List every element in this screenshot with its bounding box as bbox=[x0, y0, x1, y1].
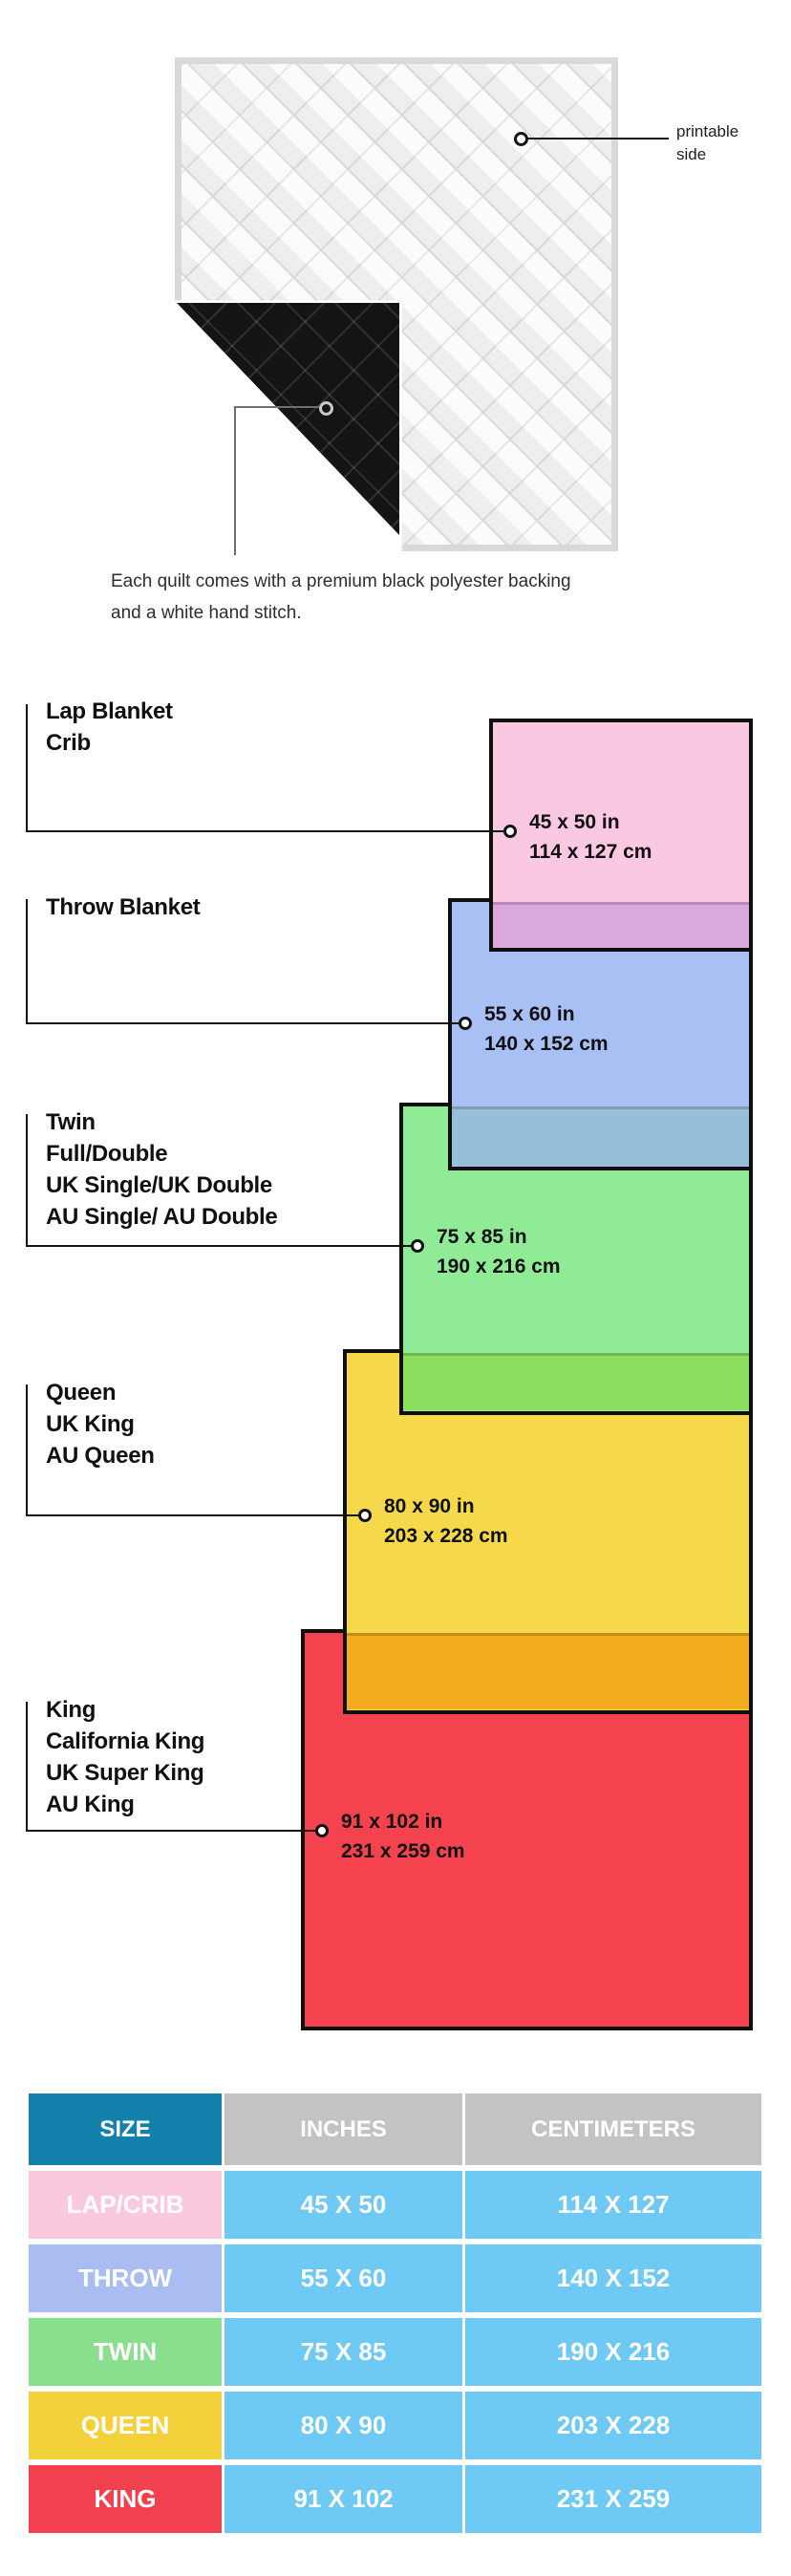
size-label-line: Lap Blanket bbox=[46, 696, 173, 727]
size-dimensions-twin: 75 x 85 in 190 x 216 cm bbox=[437, 1222, 561, 1281]
backing-marker-icon bbox=[319, 401, 333, 416]
size-label-line: AU Single/ AU Double bbox=[46, 1201, 277, 1233]
table-row-inches-king: 91 X 102 bbox=[224, 2465, 462, 2533]
size-label-line: Throw Blanket bbox=[46, 891, 200, 923]
backing-leader-line-vertical bbox=[234, 406, 236, 555]
size-dimensions-lap: 45 x 50 in 114 x 127 cm bbox=[529, 807, 652, 867]
dimension-cm: 203 x 228 cm bbox=[384, 1521, 508, 1551]
size-label-line: UK King bbox=[46, 1408, 155, 1440]
size-label-line: King bbox=[46, 1694, 204, 1726]
leader-line-vertical-throw bbox=[26, 899, 28, 1024]
size-label-line: AU King bbox=[46, 1789, 204, 1820]
table-row-cm-lap: 114 X 127 bbox=[465, 2171, 761, 2239]
table-row-cm-king: 231 X 259 bbox=[465, 2465, 761, 2533]
table-header-size: SIZE bbox=[29, 2093, 222, 2165]
table-row-inches-queen: 80 X 90 bbox=[224, 2392, 462, 2459]
overlap-band-lap-throw bbox=[493, 902, 749, 948]
size-dimensions-queen: 80 x 90 in 203 x 228 cm bbox=[384, 1492, 508, 1551]
dimension-cm: 231 x 259 cm bbox=[341, 1836, 465, 1866]
leader-dot-lap bbox=[503, 825, 517, 838]
overlap-band-throw-twin bbox=[452, 1106, 749, 1166]
size-label-line: UK Single/UK Double bbox=[46, 1170, 277, 1201]
size-label-queen: Queen UK King AU Queen bbox=[46, 1377, 155, 1471]
table-row-size-lap: LAP/CRIB bbox=[29, 2171, 222, 2239]
leader-line-vertical-lap bbox=[26, 704, 28, 832]
leader-dot-king bbox=[315, 1824, 329, 1837]
size-dimensions-king: 91 x 102 in 231 x 259 cm bbox=[341, 1807, 465, 1866]
leader-dot-queen bbox=[358, 1509, 372, 1522]
size-label-line: Queen bbox=[46, 1377, 155, 1408]
overlap-band-twin-queen bbox=[403, 1353, 749, 1410]
leader-line-horizontal-king bbox=[26, 1830, 315, 1832]
table-row-size-king: KING bbox=[29, 2465, 222, 2533]
size-label-line: Crib bbox=[46, 727, 173, 759]
size-label-line: AU Queen bbox=[46, 1440, 155, 1471]
table-row-cm-queen: 203 X 228 bbox=[465, 2392, 761, 2459]
table-row-cm-twin: 190 X 216 bbox=[465, 2318, 761, 2386]
table-row-inches-throw: 55 X 60 bbox=[224, 2244, 462, 2312]
dimension-cm: 190 x 216 cm bbox=[437, 1252, 561, 1281]
size-table: SIZE INCHES CENTIMETERS LAP/CRIB 45 X 50… bbox=[29, 2093, 761, 2533]
printable-side-label: printable side bbox=[676, 120, 762, 166]
leader-dot-throw bbox=[459, 1017, 472, 1030]
size-label-line: UK Super King bbox=[46, 1757, 204, 1789]
backing-leader-line-horizontal bbox=[235, 406, 319, 408]
printable-side-leader-line bbox=[527, 138, 669, 140]
quilt-black-backing-fold bbox=[177, 303, 399, 535]
table-row-inches-lap: 45 X 50 bbox=[224, 2171, 462, 2239]
size-label-line: California King bbox=[46, 1726, 204, 1757]
leader-dot-twin bbox=[411, 1239, 424, 1253]
table-row-size-throw: THROW bbox=[29, 2244, 222, 2312]
dimension-cm: 114 x 127 cm bbox=[529, 837, 652, 867]
size-label-king: King California King UK Super King AU Ki… bbox=[46, 1694, 204, 1820]
table-row-cm-throw: 140 X 152 bbox=[465, 2244, 761, 2312]
dimension-inches: 91 x 102 in bbox=[341, 1807, 465, 1836]
dimension-inches: 55 x 60 in bbox=[484, 999, 609, 1029]
size-label-twin: Twin Full/Double UK Single/UK Double AU … bbox=[46, 1106, 277, 1233]
size-dimensions-throw: 55 x 60 in 140 x 152 cm bbox=[484, 999, 609, 1059]
size-label-throw: Throw Blanket bbox=[46, 891, 200, 923]
dimension-inches: 45 x 50 in bbox=[529, 807, 652, 837]
leader-line-horizontal-throw bbox=[26, 1022, 459, 1024]
table-row-inches-twin: 75 X 85 bbox=[224, 2318, 462, 2386]
size-label-line: Full/Double bbox=[46, 1138, 277, 1170]
size-label-line: Twin bbox=[46, 1106, 277, 1138]
table-header-inches: INCHES bbox=[224, 2093, 462, 2165]
leader-line-horizontal-lap bbox=[26, 830, 503, 832]
table-row-size-twin: TWIN bbox=[29, 2318, 222, 2386]
backing-caption: Each quilt comes with a premium black po… bbox=[111, 566, 593, 629]
leader-line-vertical-twin bbox=[26, 1114, 28, 1247]
dimension-inches: 75 x 85 in bbox=[437, 1222, 561, 1252]
printable-side-marker-icon bbox=[514, 132, 528, 146]
overlap-band-queen-king bbox=[347, 1633, 749, 1709]
dimension-cm: 140 x 152 cm bbox=[484, 1029, 609, 1059]
table-header-centimeters: CENTIMETERS bbox=[465, 2093, 761, 2165]
leader-line-vertical-king bbox=[26, 1702, 28, 1832]
leader-line-horizontal-twin bbox=[26, 1245, 411, 1247]
dimension-inches: 80 x 90 in bbox=[384, 1492, 508, 1521]
leader-line-vertical-queen bbox=[26, 1385, 28, 1516]
table-row-size-queen: QUEEN bbox=[29, 2392, 222, 2459]
quilt-size-chart-page: printable side Each quilt comes with a p… bbox=[0, 0, 791, 2576]
size-label-lap: Lap Blanket Crib bbox=[46, 696, 173, 759]
leader-line-horizontal-queen bbox=[26, 1514, 358, 1516]
